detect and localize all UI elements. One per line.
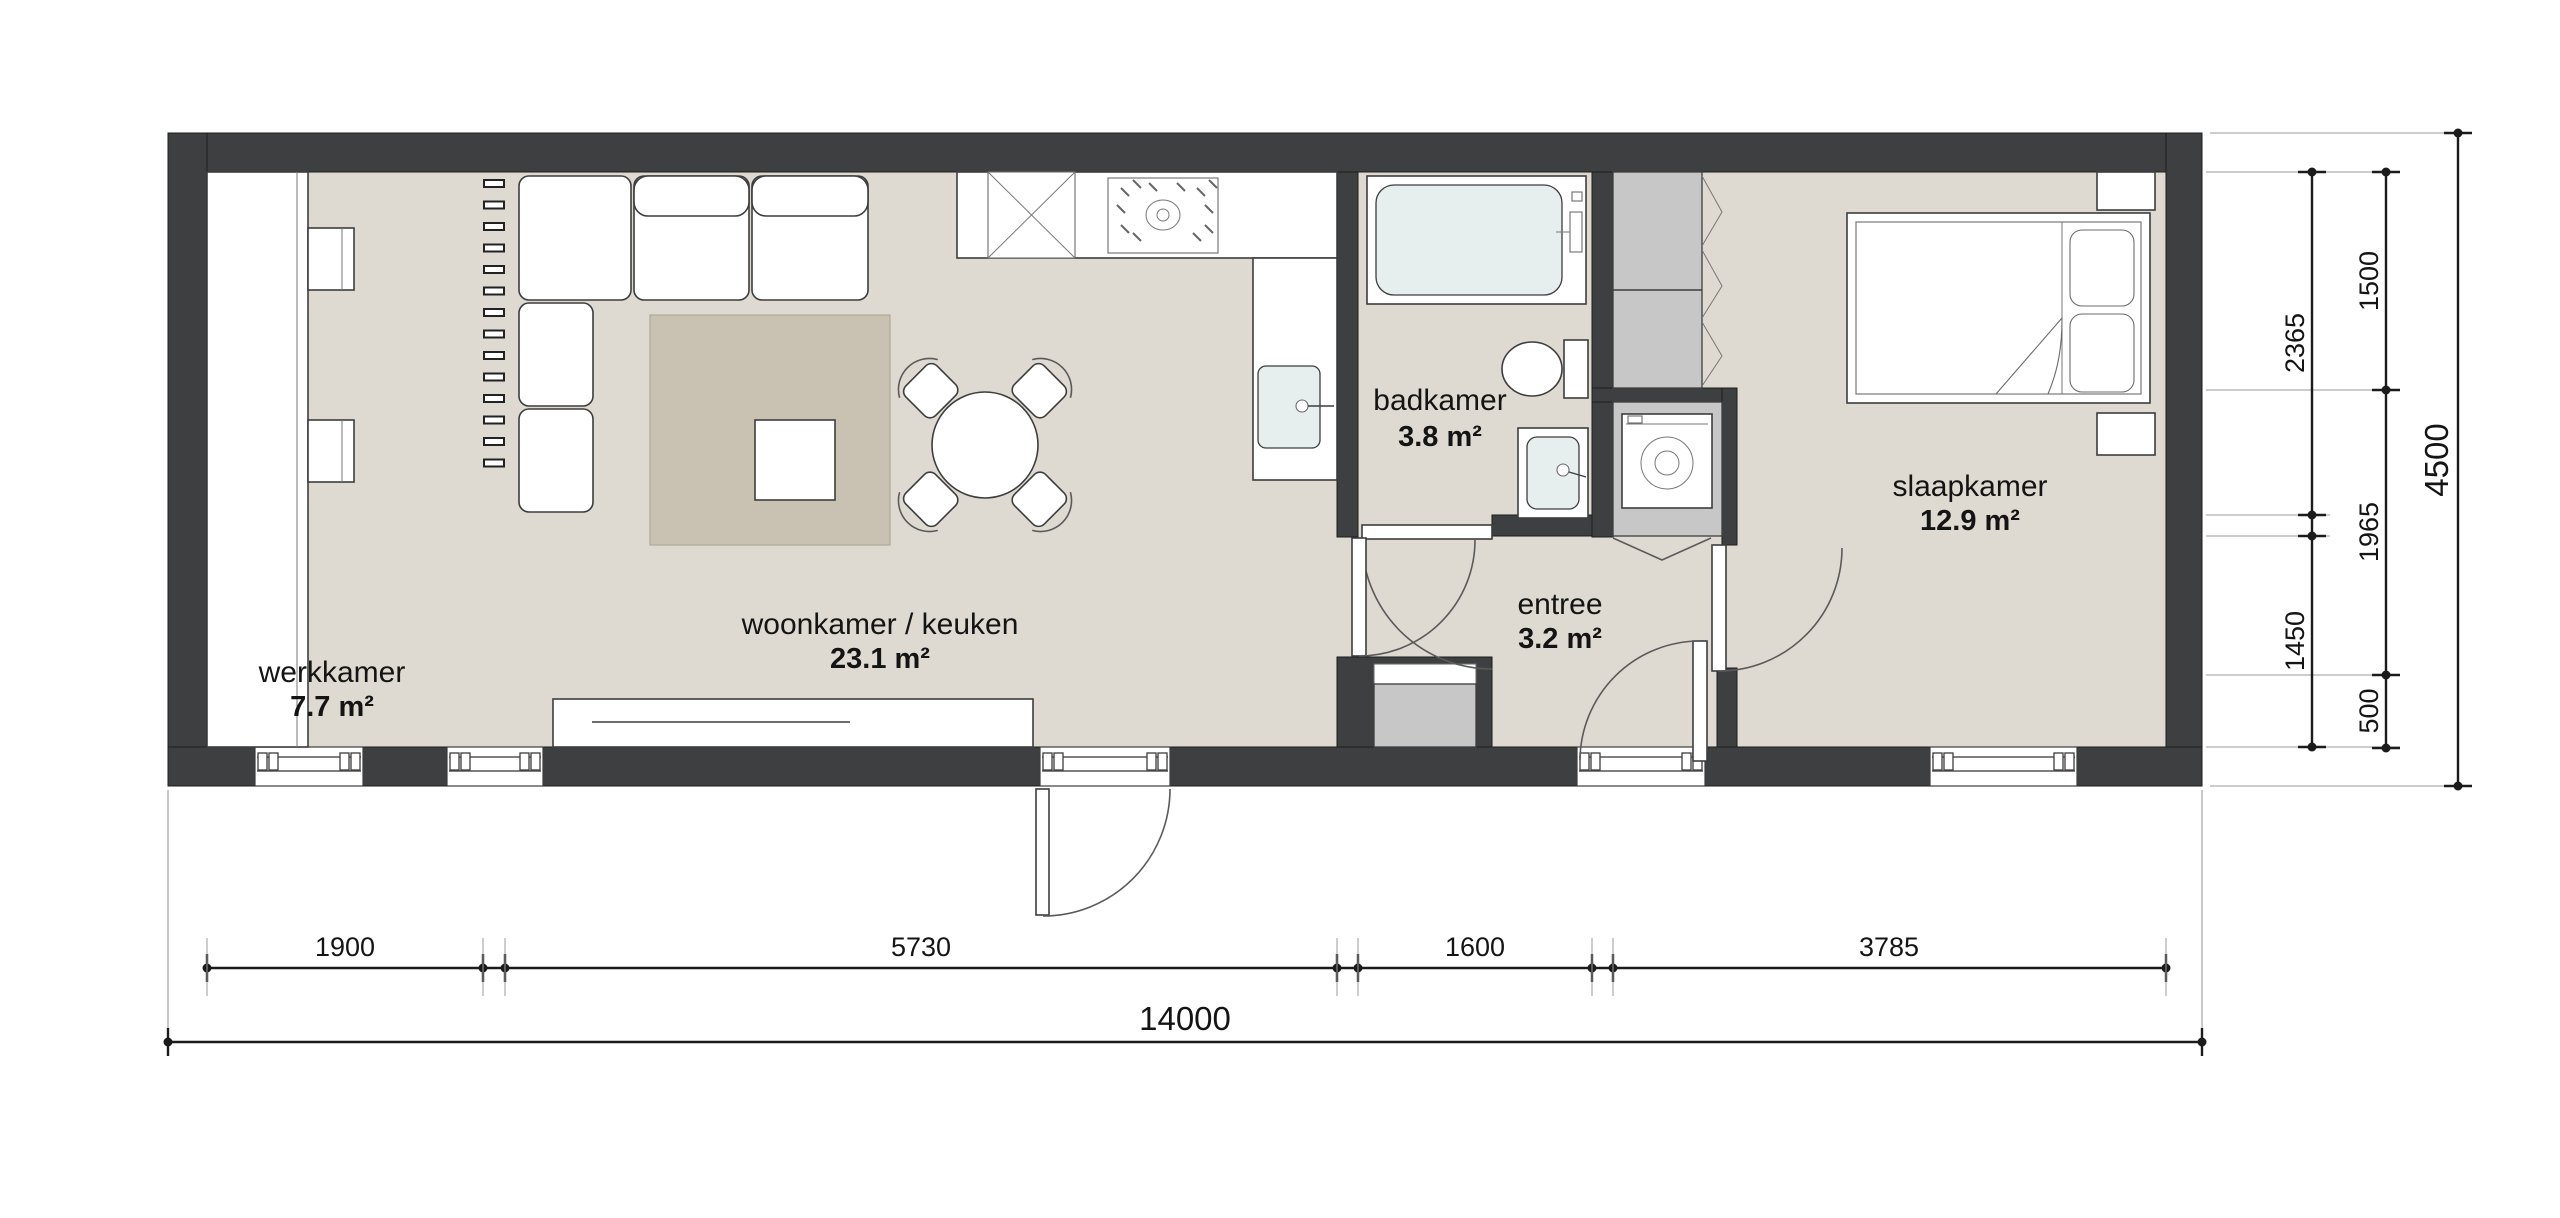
wall-left <box>168 133 207 786</box>
nightstand <box>2097 172 2155 210</box>
sofa-back-cushion <box>752 176 868 216</box>
dim-label: 1965 <box>2354 502 2384 562</box>
entree-fixtures <box>1374 664 1476 747</box>
washbasin-icon <box>1518 428 1588 518</box>
dim-label-total-width: 14000 <box>1139 1000 1231 1037</box>
floor-plan-page: werkkamer 7.7 m² woonkamer / keuken 23.1… <box>0 0 2560 1218</box>
svg-text:3.8 m²: 3.8 m² <box>1398 421 1482 453</box>
door-leaf <box>1712 545 1726 671</box>
sofa-back-cushion <box>634 176 749 216</box>
wall-bottom-seg <box>168 747 255 786</box>
washing-machine-icon <box>1622 414 1712 508</box>
door-threshold <box>1577 747 1705 786</box>
svg-text:woonkamer / keuken: woonkamer / keuken <box>741 608 1019 641</box>
dim-label: 5730 <box>891 932 951 962</box>
window <box>255 747 363 786</box>
door-leaf <box>1693 641 1707 761</box>
svg-text:entree: entree <box>1517 588 1602 621</box>
dim-label: 1450 <box>2280 611 2310 671</box>
svg-text:slaapkamer: slaapkamer <box>1892 470 2047 503</box>
dim-label: 3785 <box>1859 932 1919 962</box>
wall-below-bedroom-door <box>1717 668 1737 747</box>
sofa-seat <box>519 409 593 512</box>
wall-bottom-seg <box>1705 747 1930 786</box>
desk-chair <box>308 420 354 482</box>
pillow <box>2070 314 2134 392</box>
door-leaf <box>1362 525 1492 539</box>
meter-cupboard-front <box>1374 664 1476 684</box>
dim-label: 1600 <box>1445 932 1505 962</box>
door-swing-arc <box>1043 789 1170 916</box>
svg-text:badkamer: badkamer <box>1373 384 1506 417</box>
door-threshold <box>1040 747 1170 786</box>
meter-cupboard-floor <box>1374 684 1476 747</box>
dining-table <box>932 392 1038 498</box>
tv-sideboard <box>553 699 1033 747</box>
bathtub-icon <box>1367 176 1586 304</box>
sofa-corner-seat <box>519 176 631 300</box>
dim-label: 500 <box>2354 688 2384 733</box>
floor-plan-canvas: werkkamer 7.7 m² woonkamer / keuken 23.1… <box>0 0 2560 1218</box>
pillow <box>2070 230 2134 306</box>
svg-text:werkkamer: werkkamer <box>258 656 406 689</box>
svg-text:7.7 m²: 7.7 m² <box>290 691 374 723</box>
wall-bottom-seg <box>543 747 1040 786</box>
dim-label: 1900 <box>315 932 375 962</box>
door-leaf <box>1352 538 1366 656</box>
dim-label: 2365 <box>2280 313 2310 373</box>
sofa-seat <box>519 303 593 406</box>
wall-woonkamer-badkamer <box>1337 172 1358 537</box>
wall-bottom-seg <box>2077 747 2202 786</box>
coffee-table <box>755 420 835 500</box>
dim-label: 1500 <box>2354 251 2384 311</box>
svg-text:23.1 m²: 23.1 m² <box>830 643 930 675</box>
nightstand <box>2097 413 2155 455</box>
dim-label-total-height: 4500 <box>2418 423 2455 496</box>
kitchen-base-unit-icon <box>988 172 1075 258</box>
wall-niche-top <box>1592 388 1737 402</box>
door-leaf <box>1036 789 1049 915</box>
wall-niche-right <box>1722 388 1737 545</box>
toilet-icon <box>1502 340 1588 398</box>
svg-text:3.2 m²: 3.2 m² <box>1518 623 1602 655</box>
stove-icon <box>1108 178 1218 253</box>
bed <box>1847 213 2150 403</box>
wall-top <box>168 133 2202 172</box>
svg-text:12.9 m²: 12.9 m² <box>1920 505 2020 537</box>
window <box>447 747 543 786</box>
window <box>1930 747 2077 786</box>
wall-bottom-seg <box>363 747 447 786</box>
wall-bottom-seg <box>1170 747 1577 786</box>
wall-badkamer-closet <box>1592 172 1613 537</box>
wall-right <box>2166 133 2202 786</box>
desk-chair <box>308 228 354 290</box>
